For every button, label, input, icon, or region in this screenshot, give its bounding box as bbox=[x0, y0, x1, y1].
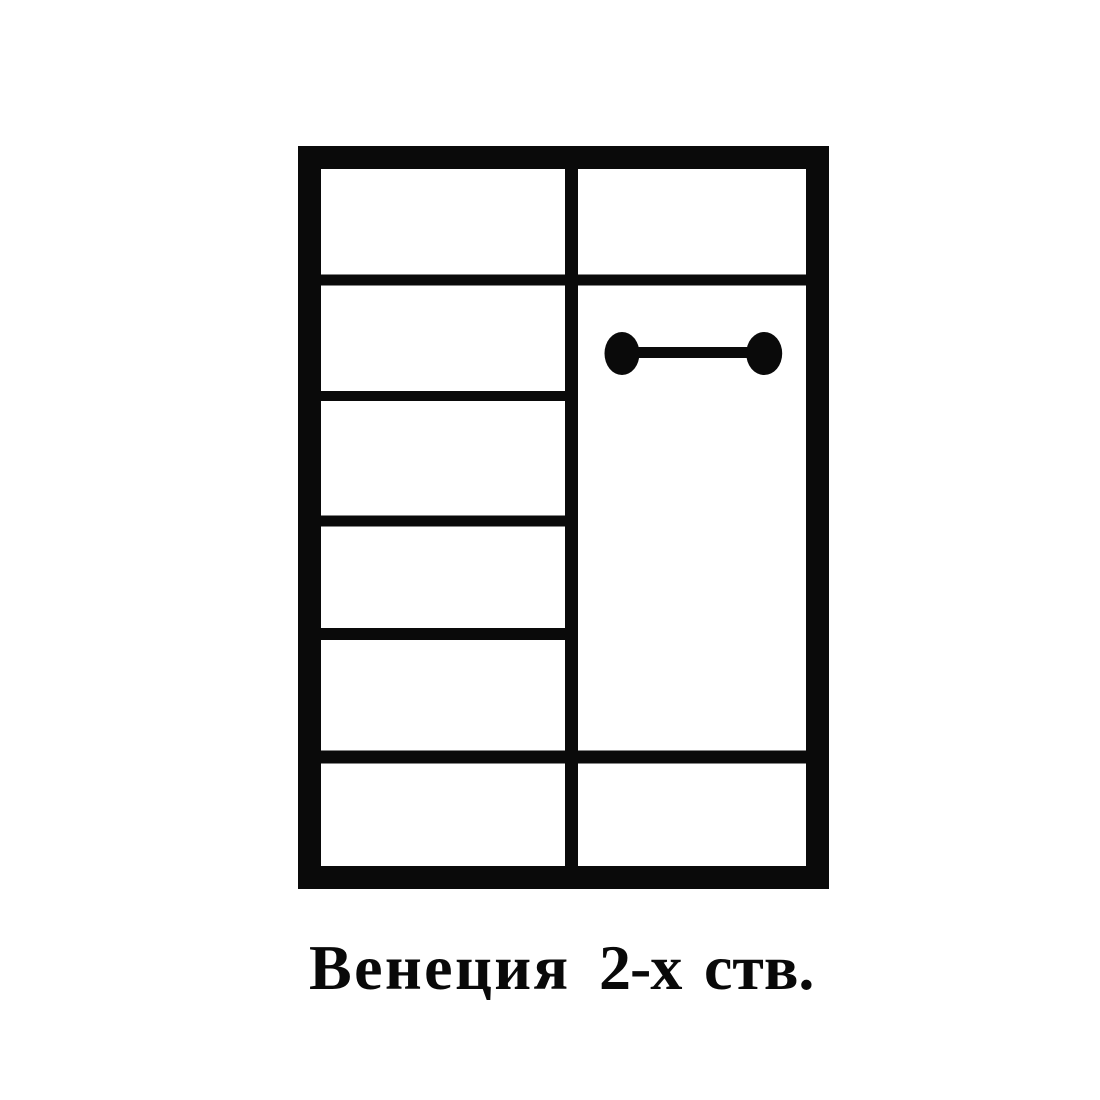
svg-text:Венеция2-хств.: Венеция2-хств. bbox=[309, 932, 814, 1003]
